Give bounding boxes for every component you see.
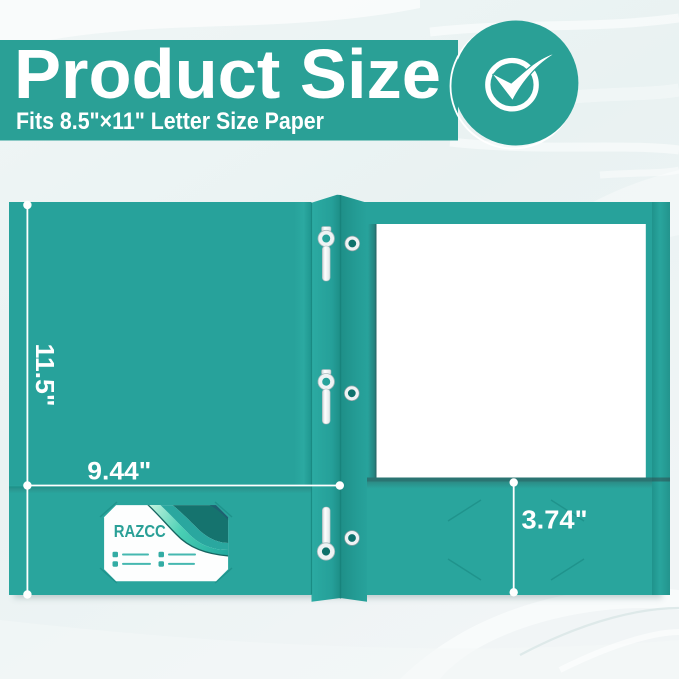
svg-text:11.5": 11.5" [30,344,60,407]
svg-text:9.44": 9.44" [87,458,151,486]
svg-text:3.74": 3.74" [522,505,588,535]
svg-text:RAZCC: RAZCC [114,521,166,541]
svg-text:Fits 8.5"×11" Letter Size Pape: Fits 8.5"×11" Letter Size Paper [16,108,324,135]
svg-text:Product Size: Product Size [14,35,441,113]
